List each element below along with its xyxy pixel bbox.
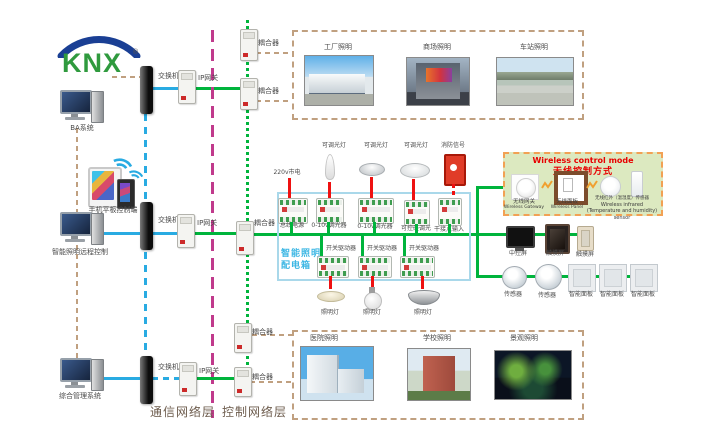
network-switch-bottom [140,356,153,404]
green-link-gateway3-coupler5 [196,377,234,380]
station-lighting-photo [496,57,574,106]
green-stub-actuator2 [361,236,364,256]
ba-system-label: BA系统 [70,124,94,132]
lighting-lamp-1-label: 照明灯 [321,310,339,317]
factory-lighting-label: 工厂照明 [324,43,352,51]
wifi-icon [126,162,147,181]
red-mains-line [288,178,291,198]
green-stub-m1 [290,222,293,233]
lighting-lamp-2-label: 照明灯 [363,310,381,317]
green-stub-m3 [373,222,376,233]
smart-panel-1 [568,264,596,292]
green-stub-m2 [327,222,330,233]
touch-screen-2 [577,226,594,251]
landscape-lighting-label: 景观照明 [510,334,538,342]
green-stub-actuator1 [320,236,323,256]
smart-panel-3-label: 智能面板 [631,292,655,299]
red-line-blamp3 [421,276,424,289]
touch-screen-2-label: 触摸屏 [576,252,594,259]
mall-led-screen [426,68,452,82]
hospital-lighting-label: 医院照明 [310,334,338,342]
wireless-gateway-device [511,174,539,200]
red-line-blamp1 [329,276,332,289]
central-control-screen-label: 中控屏 [509,251,527,258]
coupler-1 [240,29,258,61]
sensor-2-label: 传感器 [538,293,556,300]
tan-link-coupler2-photos [256,100,292,102]
dry-contact-module [438,198,462,226]
switch-actuator-2-label: 开关驱动器 [367,246,397,253]
management-system-computer [60,358,104,392]
central-control-screen [506,226,535,248]
coupler-4-label: 耦合器 [252,328,273,336]
fire-signal-label: 消防信号 [441,143,465,150]
green-stub-m4 [415,224,418,233]
dimmable-lamp-1 [325,154,335,180]
landscape-lights-glow [495,351,571,399]
coupler-4 [234,323,252,353]
blue-link-switch1-gateway1 [152,87,179,90]
dimmable-lamp-3 [400,163,430,178]
thyristor-dimmer-module [404,200,430,226]
station-lighting-label: 车站照明 [520,43,548,51]
sensor-1 [502,266,527,289]
management-system-label: 综合管理系统 [59,392,101,400]
hospital-building-wing [338,369,364,392]
red-line-lamp1 [328,182,331,198]
lighting-lamp-3 [408,290,440,305]
coupler-2 [240,78,258,110]
smartphone [117,179,135,209]
mall-lighting-label: 商场照明 [423,43,451,51]
smart-panel-3 [630,264,658,292]
smart-panel-2-label: 智能面板 [600,292,624,299]
fire-alarm [444,154,466,186]
green-link-gateway1-coupler2 [193,87,241,90]
knx-logo-registered-mark: ® [132,48,139,56]
comm-layer-label: 通信网络层 [150,403,215,420]
ip-gateway-top [178,70,196,104]
smart-panel-2 [599,264,627,292]
factory-lighting-photo [304,55,374,106]
dimmable-lamp-1-label: 可调光灯 [322,143,346,150]
school-building [423,356,455,393]
lighting-lamp-2 [364,292,382,310]
green-trunk-right [476,186,479,278]
station-road [497,93,573,105]
ctrl-layer-label: 控制网络层 [222,403,287,420]
coupler-5-label: 耦合器 [252,373,273,381]
switch-actuator-2 [358,256,392,278]
knx-lighting-system-diagram: KNX ® BA系统 [0,0,715,443]
dimmer-module-1 [316,198,344,224]
switch-actuator-1-label: 开关驱动器 [326,246,356,253]
factory-ground [305,94,373,105]
coupler-2-label: 耦合器 [258,87,279,95]
monitor [60,358,92,382]
remote-control-label: 智能照明远程控制 [52,248,108,256]
station-deck [497,72,573,80]
wireless-ir-sensor-body [631,171,643,197]
pc-tower [91,359,104,391]
monitor-base [65,239,85,242]
bus-power-module [278,198,308,224]
wireless-control-box: Wireless control mode 无线控制方式 无线网关 Wirele… [503,152,663,216]
lighting-lamp-1 [317,291,345,302]
wireless-panel-label-en: Wireless Panel [551,205,583,210]
mains-power-label: 220v市电 [273,170,300,177]
pc-tower [91,213,104,245]
coupler-3-label: 耦合器 [254,219,275,227]
red-line-lamp3 [412,179,415,200]
network-switch-top [140,66,153,114]
wireless-ir-sensor-label-en: Wireless infrared (Temperature and humid… [586,202,658,221]
switch-actuator-3-label: 开关驱动器 [409,246,439,253]
green-stub-actuator3 [403,236,406,256]
switch-actuator-1 [317,256,349,278]
monitor [60,90,92,114]
switch-middle-label: 交换机 [158,216,179,224]
smartphone-screen [120,183,130,202]
coupler-5 [234,367,252,397]
dimmable-lamp-2-label: 可调光灯 [364,143,388,150]
ip-gateway-middle-label: IP网关 [197,219,217,227]
ba-system-computer [60,90,104,124]
dimmable-lamp-3-label: 可调光灯 [404,143,428,150]
hospital-lighting-photo [300,346,374,401]
switch-top-label: 交换机 [158,72,179,80]
ip-gateway-top-label: IP网关 [198,74,218,82]
wireless-ir-sensor-label-zh: 无线红外（温湿度）传感器 [595,196,649,201]
lighting-lamp-3-label: 照明灯 [414,310,432,317]
sensor-1-label: 传感器 [504,292,522,299]
wireless-ir-sensor-dome [600,176,621,197]
tablet-screen [92,171,114,200]
blue-dashed-switch3-gateway3 [152,377,180,380]
dimmable-lamp-2 [359,163,385,176]
wireless-gateway-label-en: Wireless Gateway [504,205,544,210]
blue-link-switch2-gateway2 [152,232,178,235]
sensor-2 [535,264,562,290]
network-switch-middle [140,202,153,250]
smart-panel-1-label: 智能面板 [569,292,593,299]
knx-logo-text: KNX [62,48,122,79]
factory-building [309,74,365,97]
ip-gateway-bottom-label: IP网关 [199,367,219,375]
ip-gateway-bottom [179,362,197,396]
switch-bottom-label: 交换机 [158,363,179,371]
red-line-lamp2 [370,177,373,198]
green-stub-m5 [448,224,451,233]
wireless-signal-icon [586,180,598,190]
blue-dashed-comm-bus-lower [144,252,147,358]
dist-box-title-line2: 配电箱 [281,258,311,271]
monitor-base [65,385,85,388]
switch-actuator-3 [400,256,435,278]
wireless-signal-icon [541,180,553,190]
touch-screen-1-label: 触摸屏 [546,251,564,258]
monitor-base [65,117,85,120]
red-dashed-fire-line [452,184,455,198]
hospital-building-main [307,355,339,392]
remote-control-computer [60,212,104,246]
school-lighting-label: 学校照明 [423,334,451,342]
monitor [60,212,92,236]
pc-tower [91,91,104,123]
school-lighting-photo [407,348,471,401]
mobile-control-group [88,150,150,208]
mall-lighting-photo [406,57,470,106]
dimmer-module-2 [358,198,394,224]
green-branch-sensors [478,275,503,278]
coupler-3 [236,221,254,255]
school-trees [408,391,470,400]
green-link-gateway2-coupler3 [192,232,237,235]
tan-link-to-top-switch [112,76,140,78]
coupler-1-label: 耦合器 [258,39,279,47]
ip-gateway-middle [177,214,195,248]
tan-link-coupler1-photos [256,52,292,54]
landscape-lighting-photo [494,350,572,400]
tan-link-coupler5-photos [250,381,292,383]
